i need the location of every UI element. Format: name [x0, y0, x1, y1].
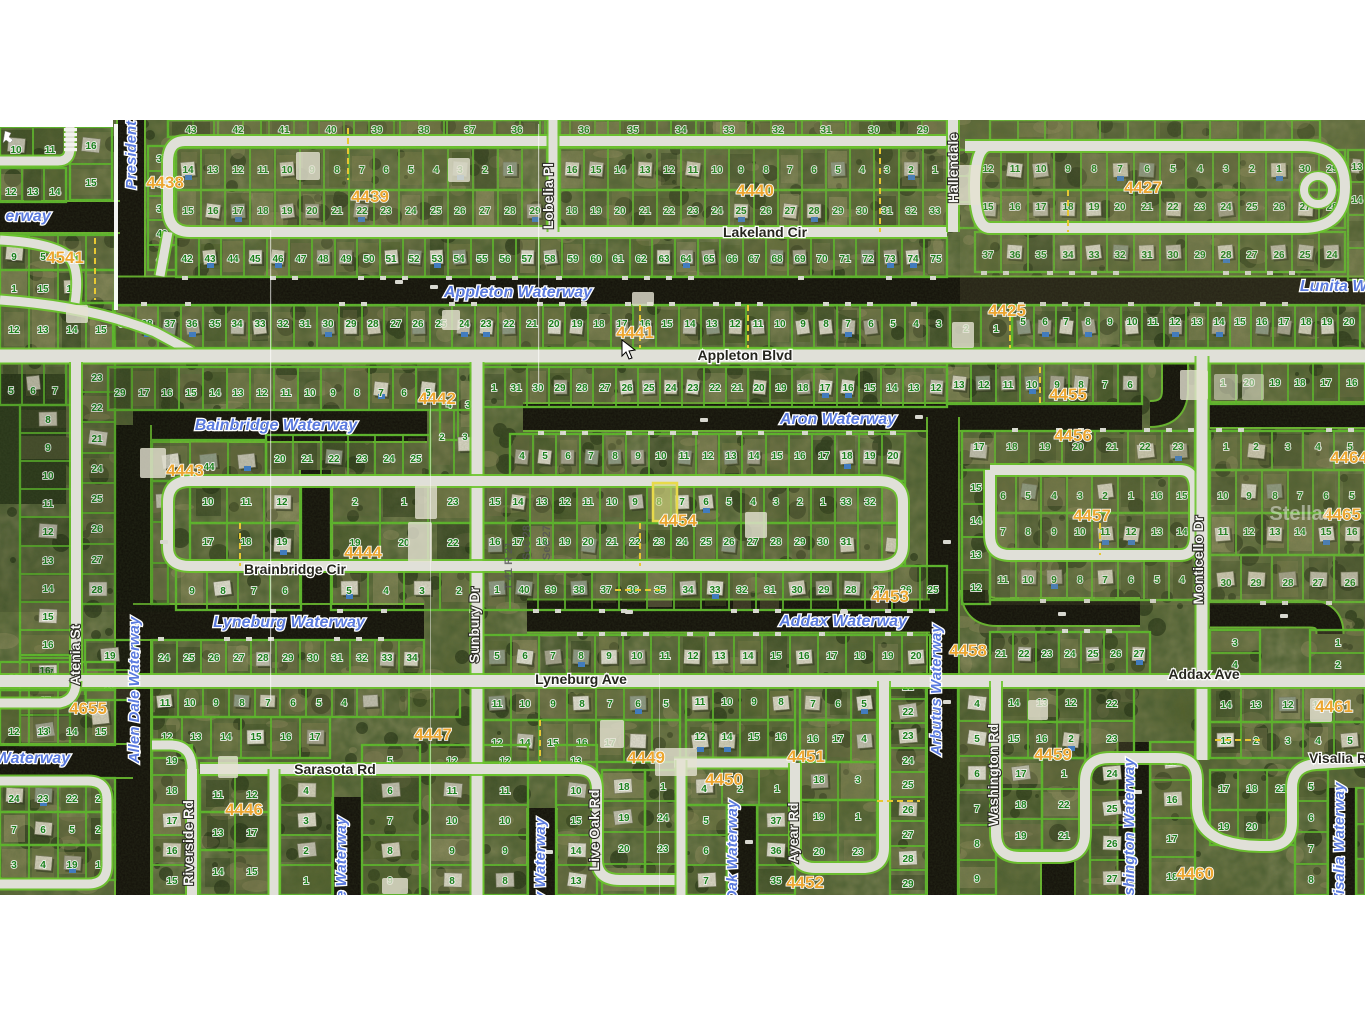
svg-text:Washington Waterway: Washington Waterway: [1121, 758, 1138, 918]
svg-text:4459: 4459: [1034, 745, 1072, 764]
svg-text:4541: 4541: [46, 248, 84, 267]
svg-text:Aron Waterway: Aron Waterway: [779, 411, 897, 428]
svg-text:Oak Waterway: Oak Waterway: [724, 799, 741, 902]
svg-text:4443: 4443: [166, 461, 204, 480]
svg-text:4438: 4438: [146, 173, 184, 192]
svg-text:Visalia Waterway: Visalia Waterway: [1331, 782, 1348, 904]
svg-text:4458: 4458: [949, 641, 987, 660]
svg-text:Sec 28: Sec 28: [521, 525, 533, 560]
svg-text:Washington Rd: Washington Rd: [985, 724, 1001, 826]
svg-text:Lyneburg Waterway: Lyneburg Waterway: [213, 614, 366, 631]
svg-text:Live Oak Rd: Live Oak Rd: [586, 790, 602, 871]
svg-text:Lakeland Cir: Lakeland Cir: [723, 224, 808, 240]
svg-text:4452: 4452: [786, 873, 824, 892]
svg-text:Bainbridge Waterway: Bainbridge Waterway: [195, 417, 359, 434]
svg-text:4461: 4461: [1315, 697, 1353, 716]
svg-text:Sarasota Rd: Sarasota Rd: [294, 761, 376, 777]
svg-text:Allen Dale Waterway: Allen Dale Waterway: [126, 616, 143, 764]
svg-text:T 41 R 21: T 41 R 21: [503, 542, 515, 590]
svg-text:Sunbury Dr: Sunbury Dr: [466, 586, 482, 663]
svg-text:4425: 4425: [988, 301, 1026, 320]
svg-text:4460: 4460: [1176, 864, 1214, 883]
svg-text:Appleton Waterway: Appleton Waterway: [443, 284, 593, 301]
svg-text:le Waterway: le Waterway: [333, 816, 350, 903]
svg-text:4446: 4446: [225, 800, 263, 819]
svg-text:4444: 4444: [344, 543, 382, 562]
svg-text:4451: 4451: [787, 747, 825, 766]
svg-text:4450: 4450: [705, 770, 743, 789]
svg-text:4439: 4439: [351, 187, 389, 206]
svg-text:ry Waterway: ry Waterway: [532, 817, 549, 906]
svg-text:Visalia R: Visalia R: [1309, 750, 1365, 766]
svg-text:4453: 4453: [871, 587, 909, 606]
svg-text:Lyneburg Ave: Lyneburg Ave: [535, 671, 627, 687]
svg-text:President: President: [123, 120, 140, 189]
svg-text:Waterway: Waterway: [0, 750, 71, 767]
svg-text:4655: 4655: [69, 699, 107, 718]
svg-text:4441: 4441: [616, 323, 654, 342]
svg-text:Atenia St: Atenia St: [67, 624, 83, 685]
svg-text:4449: 4449: [627, 748, 665, 767]
svg-text:Appleton Blvd: Appleton Blvd: [698, 347, 793, 363]
svg-text:Lobelia Pl: Lobelia Pl: [540, 163, 556, 229]
svg-text:4454: 4454: [659, 511, 697, 530]
svg-text:Addax Waterway: Addax Waterway: [778, 613, 908, 630]
svg-text:Riverside Rd: Riverside Rd: [180, 800, 196, 886]
svg-text:4455: 4455: [1049, 385, 1087, 404]
svg-text:4456: 4456: [1054, 426, 1092, 445]
svg-text:4442: 4442: [418, 389, 456, 408]
svg-text:Lunita Wa: Lunita Wa: [1300, 278, 1365, 295]
svg-text:Arbutus Waterway: Arbutus Waterway: [928, 624, 945, 757]
svg-text:Addax Ave: Addax Ave: [1168, 666, 1240, 682]
svg-text:4440: 4440: [736, 181, 774, 200]
svg-text:4447: 4447: [414, 725, 452, 744]
svg-text:4427: 4427: [1124, 178, 1162, 197]
svg-text:4457: 4457: [1073, 506, 1111, 525]
svg-text:erway: erway: [5, 208, 51, 225]
svg-text:Ayear Rd: Ayear Rd: [785, 803, 801, 864]
svg-text:Sec 27: Sec 27: [541, 525, 553, 560]
svg-text:Stellar: Stellar: [1269, 503, 1330, 525]
svg-text:Hallendale: Hallendale: [945, 133, 961, 203]
svg-text:Brainbridge Cir: Brainbridge Cir: [244, 561, 346, 577]
svg-text:4464: 4464: [1330, 448, 1365, 467]
svg-text:Monticello Dr: Monticello Dr: [1190, 515, 1206, 604]
